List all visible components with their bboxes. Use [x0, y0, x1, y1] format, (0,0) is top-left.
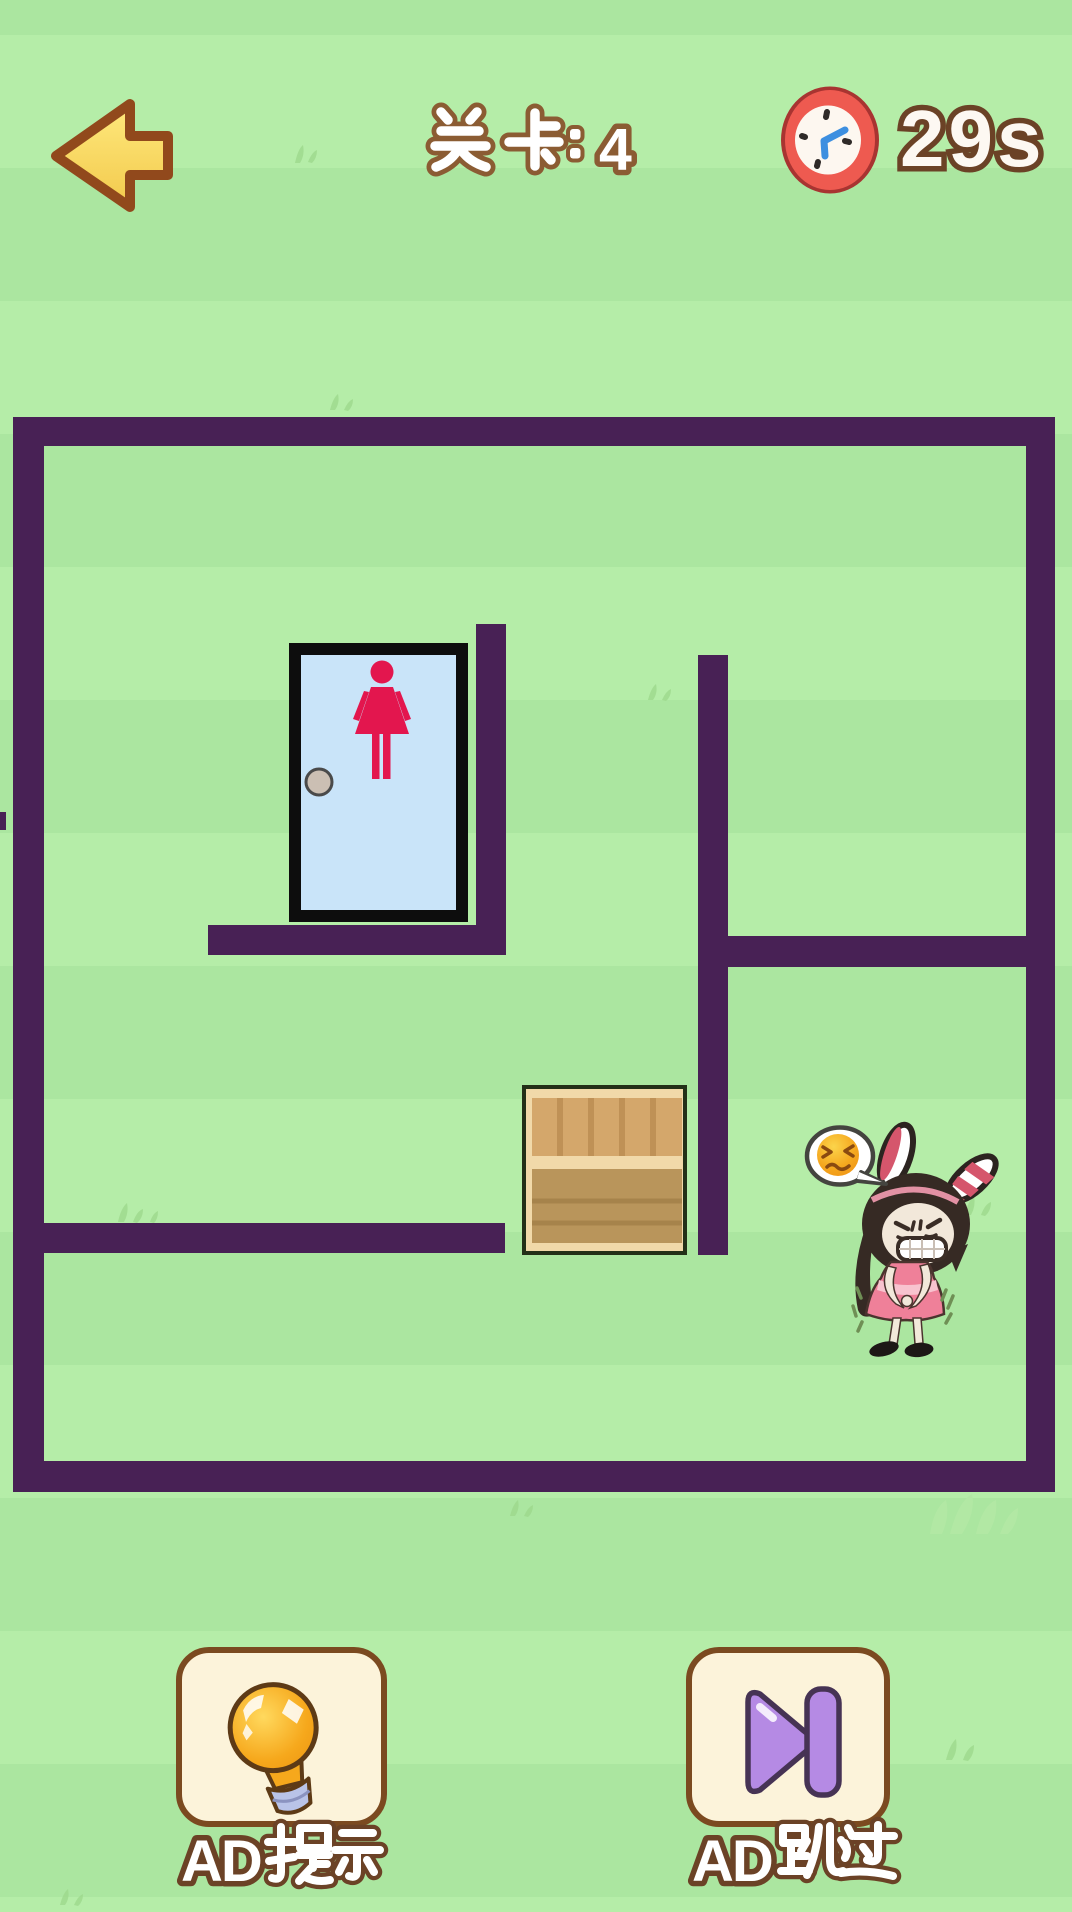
- svg-text:AD: AD: [692, 1829, 772, 1894]
- svg-text:29s: 29s: [900, 94, 1045, 183]
- svg-text:AD: AD: [181, 1829, 261, 1894]
- svg-text:4: 4: [599, 117, 632, 183]
